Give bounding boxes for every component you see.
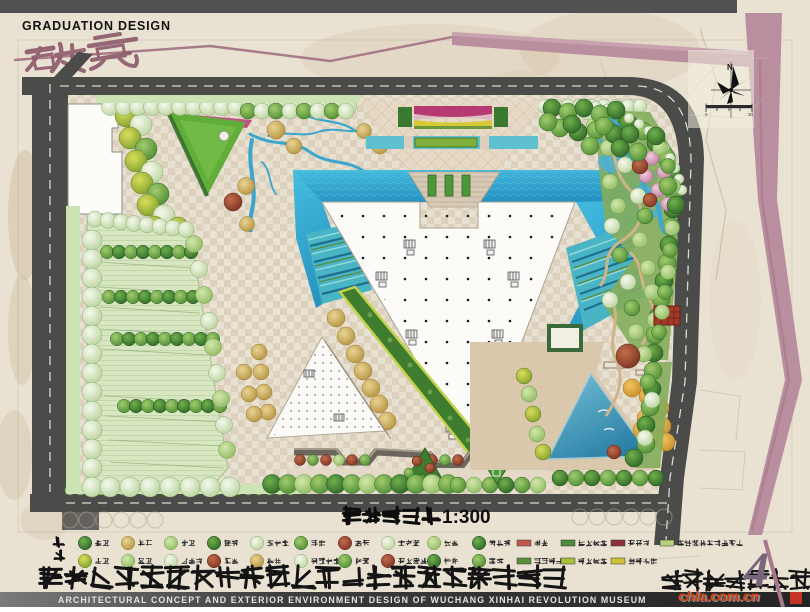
svg-text:1:300: 1:300 — [442, 507, 491, 528]
svg-text:4: 4 — [743, 541, 769, 597]
svg-text:GRADUATION DESIGN: GRADUATION DESIGN — [22, 19, 171, 33]
svg-text:N: N — [727, 63, 733, 72]
svg-text:ARCHITECTURAL CONCEPT AND EXTE: ARCHITECTURAL CONCEPT AND EXTERIOR ENVIR… — [58, 595, 647, 605]
svg-text:30: 30 — [748, 112, 754, 117]
